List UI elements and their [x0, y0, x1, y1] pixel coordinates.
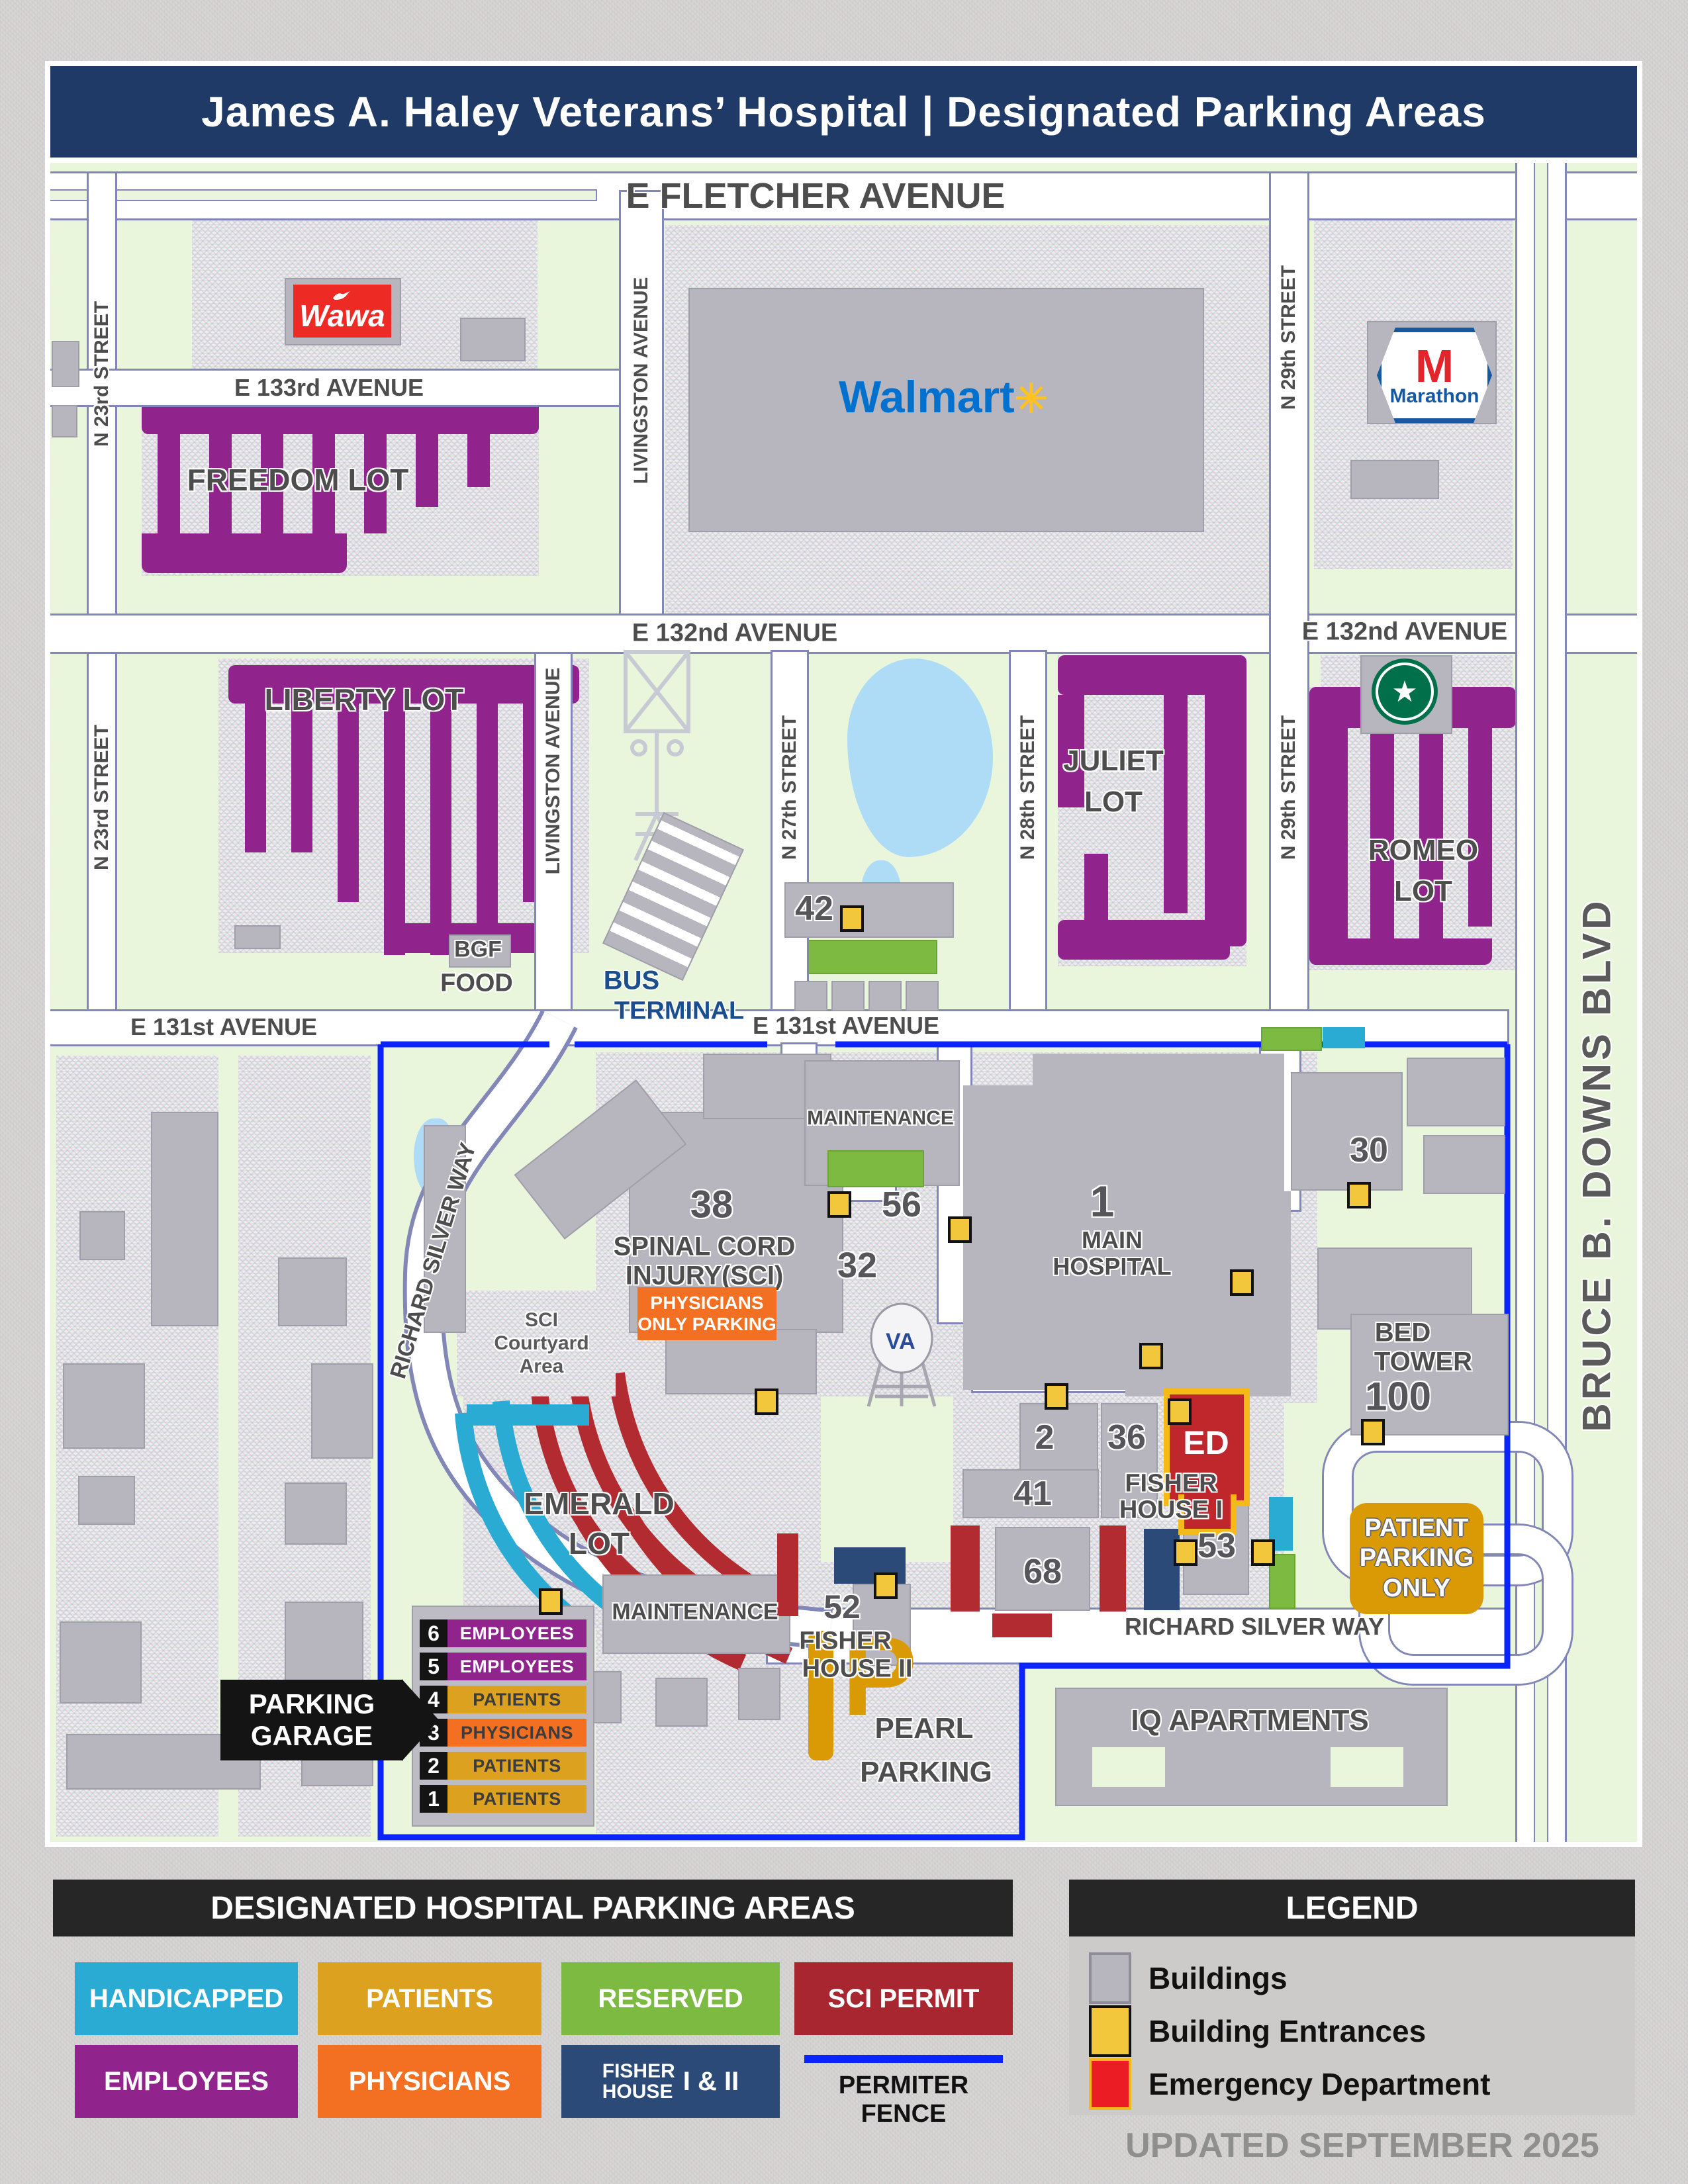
building-generic — [63, 1363, 145, 1449]
bus-bay — [906, 981, 939, 1011]
street-label-n-29th-north: N 29th STREET — [1278, 265, 1300, 410]
va-tower-label: VA — [886, 1329, 915, 1354]
legend-item-buildings: Buildings — [1089, 1952, 1288, 2004]
walmart-label: Walmart — [839, 372, 1015, 422]
street-label-e-133rd: E 133rd AVENUE — [234, 374, 424, 402]
street-label-n-23rd-south: N 23rd STREET — [91, 725, 113, 870]
building-53-label: 53 — [1197, 1526, 1236, 1566]
building-entrance-marker — [1045, 1383, 1068, 1410]
building-generic — [79, 1211, 125, 1260]
bed-tower-label-2: TOWER — [1374, 1347, 1472, 1377]
street-label-e-132nd-east: E 132nd AVENUE — [1302, 618, 1507, 647]
romeo-lot-label-2: LOT — [1394, 875, 1452, 908]
legend-chip-patients: PATIENTS — [318, 1962, 541, 2035]
garage-level-row: 1 PATIENTS — [420, 1785, 586, 1813]
walmart-logo: Walmart✳ — [839, 371, 1048, 423]
bgf-label-2: FOOD — [440, 970, 513, 998]
emerald-lot-label-2: LOT — [569, 1525, 630, 1561]
freedom-lot-label: FREEDOM LOT — [187, 462, 409, 498]
bed-tower-100-label: 100 — [1365, 1374, 1431, 1420]
bed-tower-label-1: BED — [1375, 1318, 1430, 1348]
legend-chip-sci-permit: SCI PERMIT — [794, 1962, 1013, 2035]
building-generic — [52, 405, 77, 437]
legend-item-emergency-department: Emergency Department — [1089, 2058, 1490, 2110]
garage-level-row: 4 PATIENTS — [420, 1686, 586, 1713]
sci-permit-strip — [992, 1614, 1052, 1637]
emerald-lot-label-1: EMERALD — [524, 1486, 674, 1522]
main-hospital-label-1: MAIN — [1082, 1226, 1143, 1254]
building-41-label: 41 — [1013, 1474, 1052, 1514]
fisher-house-1-label-2: HOUSE I — [1119, 1496, 1223, 1525]
walmart-spark-icon: ✳ — [1015, 377, 1048, 421]
ed-label: ED — [1183, 1424, 1229, 1462]
garage-level-label: PHYSICIANS — [447, 1719, 586, 1747]
wawa-sign: Wawa — [293, 285, 391, 338]
garage-level-row: 2 PATIENTS — [420, 1752, 586, 1780]
building-entrances-swatch — [1089, 2005, 1131, 2057]
parking-garage-arrow-icon: PARKING GARAGE — [220, 1680, 403, 1760]
garage-sign-line-1: PARKING — [249, 1688, 375, 1720]
legend-entrances-label: Building Entrances — [1149, 2013, 1426, 2049]
bus-bay — [868, 981, 902, 1011]
street-label-e-131st-east: E 131st AVENUE — [753, 1012, 939, 1040]
building-30-wing — [1407, 1058, 1505, 1126]
sci-permit-strip — [951, 1525, 980, 1612]
patient-sign-line-1: PATIENT — [1350, 1514, 1483, 1544]
legend-buildings-label: Buildings — [1149, 1960, 1288, 1996]
garage-level-number: 1 — [420, 1785, 447, 1813]
patient-sign-line-2: PARKING — [1350, 1543, 1483, 1574]
marathon-m: M — [1415, 345, 1454, 387]
garage-level-label: PATIENTS — [447, 1686, 586, 1713]
sci-courtyard-label-2: Courtyard — [494, 1332, 588, 1355]
pearl-parking-label-1: PEARL — [874, 1712, 973, 1745]
fisher-chip-line-2: HOUSE — [602, 2081, 675, 2103]
legend-chip-reserved: RESERVED — [561, 1962, 780, 2035]
building-generic — [738, 1668, 780, 1720]
legend-chip-employees: EMPLOYEES — [75, 2045, 298, 2118]
sci-permit-strip — [1100, 1525, 1126, 1612]
building-entrance-marker — [1361, 1419, 1385, 1445]
building-entrance-marker — [539, 1588, 563, 1615]
sci-courtyard-label-1: SCI — [525, 1309, 558, 1332]
building-generic — [285, 1602, 363, 1684]
updated-date: UPDATED SEPTEMBER 2025 — [1090, 2126, 1635, 2165]
building-entrance-marker — [1230, 1269, 1254, 1296]
perimeter-fence-legend-line — [804, 2055, 1003, 2063]
building-56-label: 56 — [882, 1184, 921, 1225]
bgf-label-1: BGF — [454, 937, 502, 963]
building-entrance-marker — [840, 905, 864, 932]
buildings-swatch — [1089, 1952, 1131, 2004]
marathon-logo: M Marathon — [1377, 328, 1492, 423]
building-generic — [60, 1621, 142, 1704]
iq-courtyard — [1331, 1747, 1403, 1787]
street-label-e-132nd-west: E 132nd AVENUE — [632, 619, 837, 648]
building-generic — [52, 341, 79, 387]
main-hospital-label-2: HOSPITAL — [1053, 1253, 1171, 1281]
ppo-line-1: PHYSICIANS — [637, 1293, 776, 1314]
wawa-label: Wawa — [299, 300, 385, 331]
legend-chip-physicians: PHYSICIANS — [318, 2045, 541, 2118]
garage-sign-line-2: GARAGE — [251, 1720, 373, 1752]
street-label-bruce-b-downs: BRUCE B. DOWNS BLVD — [1574, 897, 1620, 1432]
building-entrance-marker — [827, 1191, 851, 1218]
building-generic — [311, 1363, 373, 1459]
bus-bay — [831, 981, 865, 1011]
garage-level-number: 5 — [420, 1653, 447, 1680]
iq-apartments-label: IQ APARTMENTS — [1131, 1704, 1368, 1737]
garage-level-label: EMPLOYEES — [447, 1619, 586, 1647]
sci-courtyard-label-3: Area — [520, 1355, 564, 1378]
building-entrance-marker — [1347, 1182, 1371, 1208]
garage-level-label: PATIENTS — [447, 1752, 586, 1780]
sci-name-2: INJURY(SCI) — [626, 1261, 784, 1291]
street-label-e-131st-west: E 131st AVENUE — [130, 1013, 317, 1041]
building-generic — [278, 1257, 347, 1326]
building-generic — [655, 1678, 708, 1727]
building-2-label: 2 — [1035, 1418, 1055, 1457]
street-label-richard-silver-way-east: RICHARD SILVER WAY — [1125, 1613, 1384, 1641]
building-entrance-marker — [1139, 1343, 1163, 1369]
designated-parking-legend-title: DESIGNATED HOSPITAL PARKING AREAS — [211, 1890, 855, 1927]
fisher-chip-line-1: FISHER — [602, 2061, 675, 2082]
juliet-lot-label-2: LOT — [1084, 786, 1143, 819]
garage-level-row: 6 EMPLOYEES — [420, 1619, 586, 1647]
ppo-line-2: ONLY PARKING — [637, 1314, 776, 1335]
pearl-parking-label-2: PARKING — [860, 1756, 992, 1789]
emergency-department-swatch — [1089, 2058, 1131, 2110]
legend-item-building-entrances: Building Entrances — [1089, 2005, 1426, 2057]
garage-level-label: EMPLOYEES — [447, 1653, 586, 1680]
building-30-label: 30 — [1350, 1130, 1388, 1170]
va-water-tower-icon: VA — [868, 1304, 935, 1406]
street-label-n-28th: N 28th STREET — [1017, 715, 1039, 860]
street-label-n-27th: N 27th STREET — [778, 715, 801, 860]
garage-level-label: PATIENTS — [447, 1785, 586, 1813]
building-generic — [1350, 460, 1439, 499]
legend-chip-fisher-house: FISHER HOUSE I & II — [561, 2045, 780, 2118]
maintenance-north-label: MAINTENANCE — [807, 1107, 954, 1130]
patient-sign-line-3: ONLY — [1350, 1574, 1483, 1604]
building-entrance-marker — [1174, 1539, 1197, 1566]
bus-terminal-label-1: BUS — [604, 966, 659, 996]
fisher-house-1-label-1: FISHER — [1125, 1470, 1217, 1498]
designated-parking-legend-header: DESIGNATED HOSPITAL PARKING AREAS — [53, 1880, 1013, 1936]
map-legend-title: LEGEND — [1286, 1890, 1418, 1927]
physicians-only-parking-sign: PHYSICIANS ONLY PARKING — [637, 1287, 776, 1340]
building-42-label: 42 — [795, 889, 833, 929]
garage-level-row: 3 PHYSICIANS — [420, 1719, 586, 1747]
building-1-label: 1 — [1090, 1176, 1115, 1226]
building-entrance-marker — [1168, 1398, 1192, 1425]
patient-parking-only-sign: PATIENT PARKING ONLY — [1350, 1503, 1483, 1614]
map-legend-panel: LEGEND Buildings Building Entrances Emer… — [1069, 1880, 1635, 2115]
starbucks-siren-icon: ★ — [1391, 675, 1417, 709]
legend-chip-handicapped: HANDICAPPED — [75, 1962, 298, 2035]
garage-level-number: 6 — [420, 1619, 447, 1647]
sci-name-1: SPINAL CORD — [614, 1232, 796, 1262]
building-32-label: 32 — [837, 1245, 877, 1286]
parking-garage-panel: 6 EMPLOYEES 5 EMPLOYEES 4 PATIENTS 3 PHY… — [412, 1606, 594, 1827]
title-bar: James A. Haley Veterans’ Hospital | Desi… — [50, 66, 1637, 158]
building-generic — [78, 1476, 135, 1525]
building-entrance-marker — [1251, 1539, 1275, 1566]
fisher-chip-suffix: I & II — [683, 2067, 739, 2097]
sci-permit-strip — [777, 1533, 798, 1616]
street-label-livingston-south: LIVINGSTON AVENUE — [542, 668, 565, 875]
sci-permit-stripe — [616, 1373, 755, 1586]
street-label-e-fletcher: E FLETCHER AVENUE — [626, 175, 1005, 216]
reserved-strip-maintenance — [827, 1150, 924, 1187]
handicapped-strip-north — [1323, 1027, 1365, 1048]
map-legend-header: LEGEND — [1069, 1880, 1635, 1936]
building-52-label: 52 — [823, 1588, 861, 1626]
map-origin: VA E FLETCHER AVENUE E 133rd AVENUE E 13… — [50, 158, 1637, 1842]
building-30-wing — [1423, 1135, 1505, 1194]
building-entrance-marker — [874, 1572, 898, 1599]
bus-terminal-label-2: TERMINAL — [614, 997, 744, 1026]
street-label-n-29th-south: N 29th STREET — [1278, 715, 1300, 860]
marathon-label: Marathon — [1390, 387, 1479, 405]
legend-ed-label: Emergency Department — [1149, 2066, 1490, 2102]
building-38-label: 38 — [690, 1183, 733, 1227]
street-label-livingston-north: LIVINGSTON AVENUE — [630, 277, 653, 484]
romeo-lot-label-1: ROMEO — [1368, 834, 1478, 867]
building-generic — [460, 318, 526, 361]
iq-courtyard — [1092, 1747, 1165, 1787]
liberty-lot-label: LIBERTY LOT — [265, 682, 464, 717]
building-entrance-marker — [755, 1388, 778, 1415]
perimeter-fence-legend-label: PERMITER FENCE — [794, 2071, 1013, 2128]
map-panel: VA E FLETCHER AVENUE E 133rd AVENUE E 13… — [50, 158, 1637, 1842]
street-label-n-23rd-north: N 23rd STREET — [91, 301, 113, 447]
garage-level-row: 5 EMPLOYEES — [420, 1653, 586, 1680]
fisher-house-2-label-2: HOUSE II — [802, 1655, 913, 1684]
bus-bay — [794, 981, 827, 1011]
maintenance-south-label: MAINTENANCE — [612, 1600, 778, 1625]
building-generic — [285, 1482, 347, 1545]
building-entrance-marker — [948, 1216, 972, 1243]
building-generic — [151, 1112, 218, 1326]
page-title: James A. Haley Veterans’ Hospital | Desi… — [201, 87, 1486, 136]
juliet-lot-label-1: JULIET — [1063, 745, 1164, 778]
reserved-strip-north — [1261, 1027, 1322, 1051]
building-generic — [234, 925, 281, 949]
fisher-house-2-label-1: FISHER — [799, 1627, 891, 1656]
building-68-label: 68 — [1023, 1552, 1062, 1592]
starbucks-logo: ★ — [1372, 659, 1438, 725]
building-36-label: 36 — [1107, 1418, 1146, 1457]
handicapped-strip-emerald — [467, 1404, 589, 1426]
